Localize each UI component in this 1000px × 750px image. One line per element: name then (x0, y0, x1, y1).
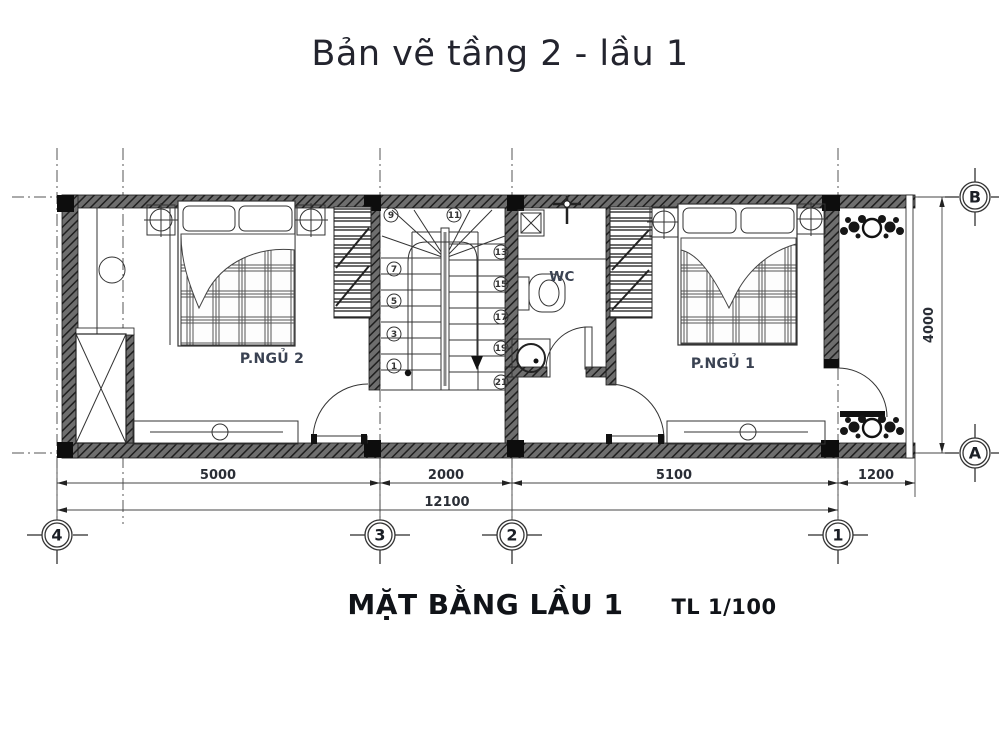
bed-1 (678, 204, 797, 345)
dim-depth: 4000 (922, 307, 937, 343)
balcony (838, 215, 904, 439)
wardrobe-2 (334, 207, 371, 318)
dim-segment: 5100 (656, 468, 692, 483)
bedroom-1-label: P.NGỦ 1 (691, 353, 755, 372)
wall-bedroom1-right (824, 208, 839, 368)
step-number: 11 (448, 211, 461, 221)
shaft-void (76, 334, 126, 443)
wc-label: WC (549, 269, 574, 285)
grid-bubble-B: B (945, 168, 999, 226)
plant-icon (840, 215, 904, 239)
step-number: 21 (495, 378, 508, 388)
grid-bubble-1: 1 (808, 520, 868, 564)
staircase: 9 7 5 3 1 11 13 15 17 19 21 (381, 208, 508, 390)
window-sill-1 (667, 421, 825, 444)
dim-total: 12100 (424, 495, 469, 510)
grid-label: 2 (506, 526, 517, 545)
bedroom-2-label: P.NGỦ 2 (240, 348, 304, 367)
step-number: 9 (388, 211, 394, 221)
door-bedroom-1 (606, 384, 664, 444)
vent-shaft (518, 210, 544, 236)
step-number: 13 (495, 248, 508, 258)
grid-label: 1 (832, 526, 843, 545)
screenshot-root: Bản vẽ tầng 2 - lầu 1 (0, 0, 1000, 750)
bedroom-1: P.NGỦ 1 (606, 202, 828, 444)
floor-plan-svg: P.NGỦ 2 (0, 0, 1000, 750)
bed-2 (178, 201, 295, 346)
bedroom-2: P.NGỦ 2 (76, 201, 371, 444)
wall-bottom (62, 443, 915, 458)
door-bedroom-2 (311, 384, 368, 444)
dim-segment: 5000 (200, 468, 236, 483)
grid-label: 3 (374, 526, 385, 545)
grid-bubble-3: 3 (350, 520, 410, 564)
door-wc (546, 327, 592, 369)
stair-rail (441, 228, 449, 390)
wall-wc-left (505, 208, 518, 443)
grid-bubble-4: 4 (27, 520, 88, 564)
dim-segment: 1200 (858, 468, 894, 483)
grid-bubble-A: A (945, 424, 999, 482)
step-number: 15 (495, 280, 508, 290)
drawing-caption: MẶT BẰNG LẦU 1 TL 1/100 (62, 588, 1000, 621)
balcony-railing (906, 195, 913, 458)
caption-scale: TL 1/100 (671, 595, 776, 619)
grid-bubble-2: 2 (482, 520, 542, 564)
grid-label: B (969, 188, 981, 207)
step-number: 19 (495, 344, 508, 354)
grid-label: A (969, 444, 982, 463)
dim-segment: 2000 (428, 468, 464, 483)
step-number: 17 (495, 313, 508, 323)
step-number: 1 (391, 362, 397, 372)
step-number: 3 (391, 330, 397, 340)
wc-room: WC (512, 196, 606, 377)
step-number: 7 (391, 265, 397, 275)
door-balcony (838, 368, 887, 417)
grid-label: 4 (51, 526, 62, 545)
stair-direction-arrow (471, 356, 483, 370)
caption-title: MẶT BẰNG LẦU 1 (347, 588, 623, 621)
wardrobe-1 (610, 207, 652, 318)
step-number: 5 (391, 297, 397, 307)
plant-icon (840, 415, 904, 439)
window-sill-2 (133, 421, 298, 444)
stool (99, 257, 125, 283)
